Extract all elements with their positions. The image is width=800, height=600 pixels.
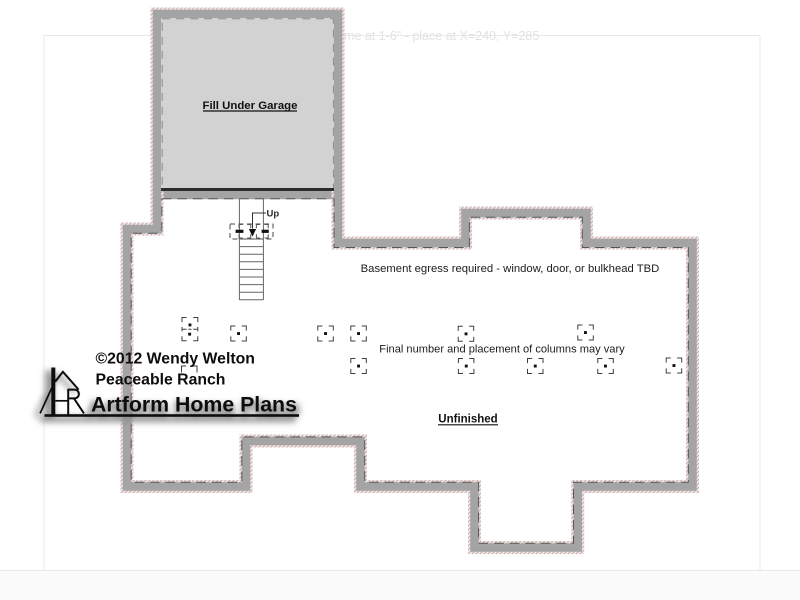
svg-text:Basement egress required - win: Basement egress required - window, door,… — [361, 263, 660, 275]
svg-text:Final number and placement of: Final number and placement of columns ma… — [379, 344, 625, 356]
svg-text:Unfinished: Unfinished — [438, 414, 497, 426]
svg-text:me at 1-6" - place at X=240, Y: me at 1-6" - place at X=240, Y=285 — [344, 29, 539, 43]
svg-text:©2012 Wendy Welton: ©2012 Wendy Welton — [96, 351, 255, 368]
svg-text:Up: Up — [267, 209, 280, 220]
svg-text:Peaceable Ranch: Peaceable Ranch — [96, 372, 226, 389]
svg-text:Artform Home Plans: Artform Home Plans — [91, 393, 297, 417]
